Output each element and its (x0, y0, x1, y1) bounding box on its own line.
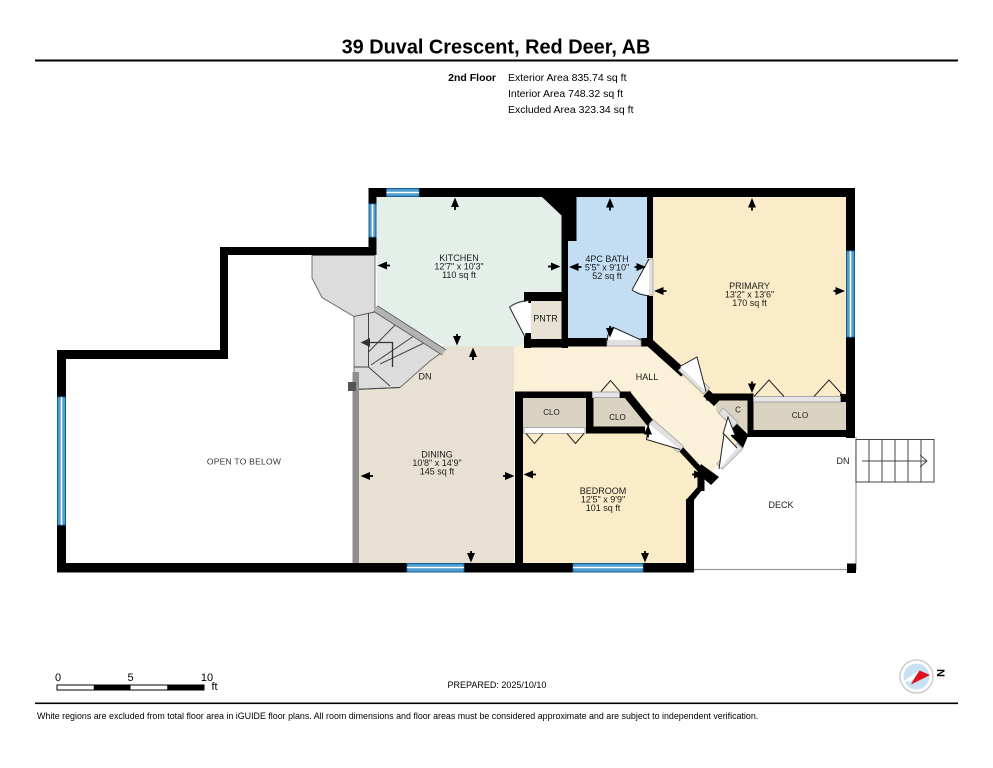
svg-text:DECK: DECK (768, 500, 793, 510)
svg-text:OPEN TO BELOW: OPEN TO BELOW (207, 457, 281, 467)
svg-text:N: N (934, 669, 946, 677)
svg-text:HALL: HALL (636, 372, 659, 382)
svg-text:170 sq ft: 170 sq ft (732, 298, 767, 308)
svg-text:110 sq ft: 110 sq ft (442, 270, 476, 280)
svg-text:CLO: CLO (792, 411, 808, 420)
svg-text:101 sq ft: 101 sq ft (586, 503, 621, 513)
svg-text:White regions are excluded fro: White regions are excluded from total fl… (37, 711, 758, 721)
svg-text:ft: ft (212, 681, 218, 693)
svg-text:CLO: CLO (609, 413, 625, 422)
svg-text:Exterior Area 835.74 sq ft: Exterior Area 835.74 sq ft (508, 72, 627, 84)
svg-text:DN: DN (419, 372, 432, 382)
svg-text:PREPARED: 2025/10/10: PREPARED: 2025/10/10 (448, 680, 547, 690)
svg-text:CLO: CLO (543, 408, 559, 417)
svg-text:52 sq ft: 52 sq ft (592, 271, 622, 281)
svg-text:0: 0 (55, 672, 61, 684)
svg-text:C: C (735, 406, 741, 415)
svg-text:39 Duval Crescent, Red Deer, A: 39 Duval Crescent, Red Deer, AB (342, 37, 651, 59)
svg-text:Excluded Area 323.34 sq ft: Excluded Area 323.34 sq ft (508, 104, 634, 116)
svg-text:2nd Floor: 2nd Floor (448, 72, 496, 84)
svg-text:PNTR: PNTR (533, 314, 558, 324)
svg-text:5: 5 (127, 672, 133, 684)
svg-text:Interior Area 748.32 sq ft: Interior Area 748.32 sq ft (508, 88, 623, 100)
svg-text:DN: DN (837, 456, 850, 466)
svg-text:145 sq ft: 145 sq ft (420, 467, 455, 477)
